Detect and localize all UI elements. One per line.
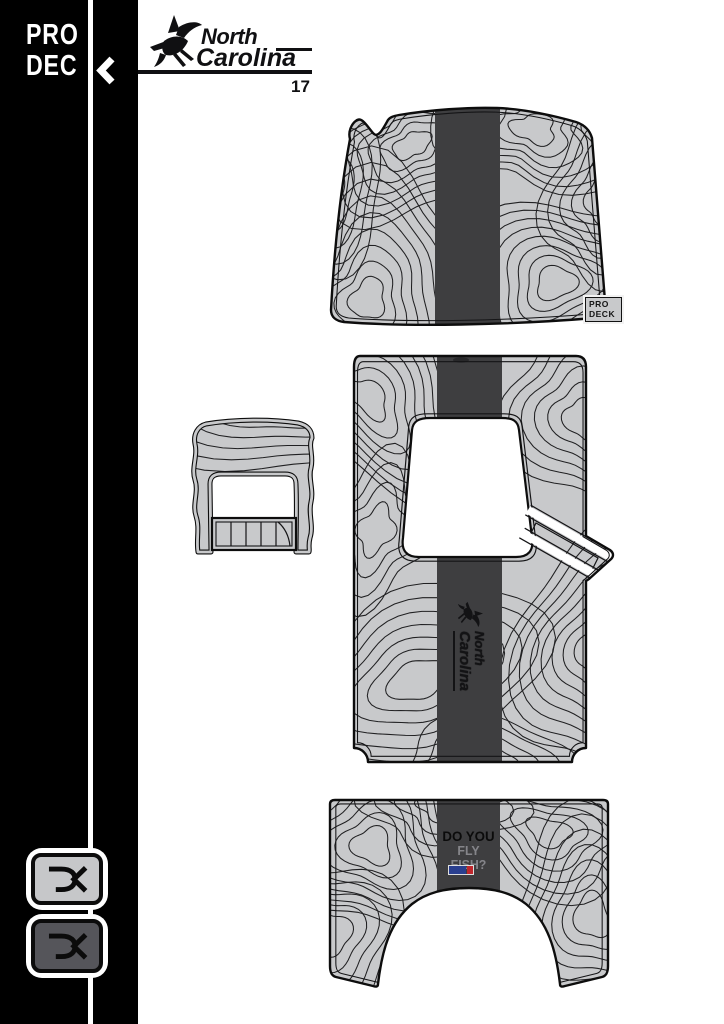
cockpit-watermark: North Carolina xyxy=(437,600,503,706)
catalog-page: PRO DEC North Carolina 17 PRO DECK xyxy=(0,0,724,1024)
prodeck-monogram-icon xyxy=(44,929,90,963)
watermark-underline xyxy=(454,631,456,691)
fly-fish-flag-badge xyxy=(449,866,473,874)
flag-blue-block xyxy=(449,866,466,874)
model-number: 17 xyxy=(291,77,310,97)
console-cutout xyxy=(403,418,533,557)
watermark-brand-top: North xyxy=(473,631,487,691)
stern-question-line1: DO YOU xyxy=(439,829,499,844)
step-pad xyxy=(212,518,296,550)
prodeck-wordmark-line1: PRO xyxy=(26,21,79,50)
bow-badge-line1: PRO xyxy=(589,299,621,309)
prodeck-wordmark-line2: DEC xyxy=(26,52,77,81)
flag-red-block xyxy=(467,866,473,874)
brand-underline xyxy=(138,70,312,74)
prodeck-chevron-icon xyxy=(96,56,116,85)
bird-icon xyxy=(456,600,484,628)
stern-pad xyxy=(324,798,614,990)
bow-traction-stripe xyxy=(435,107,500,325)
bow-prodeck-badge: PRO DECK xyxy=(585,297,622,322)
helm-pad xyxy=(190,416,318,558)
prodeck-monogram-icon xyxy=(44,862,90,896)
prodeck-monogram-dark xyxy=(26,914,108,978)
prodeck-monogram-light xyxy=(26,848,108,910)
watermark-brand-bottom: Carolina xyxy=(457,631,473,691)
brand-speed-line xyxy=(276,48,312,51)
bow-pad xyxy=(328,107,608,325)
bow-badge-line2: DECK xyxy=(589,309,621,319)
